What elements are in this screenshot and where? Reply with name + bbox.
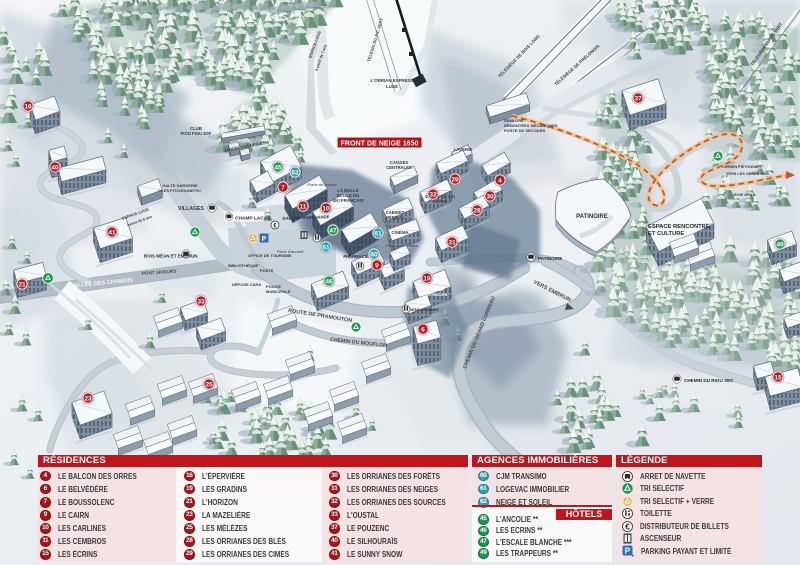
svg-text:23: 23 <box>84 395 92 402</box>
svg-text:CHEMIN PIÉTONNIER: CHEMIN PIÉTONNIER <box>722 164 761 169</box>
svg-text:Place du festival: Place du festival <box>307 182 336 187</box>
svg-text:P: P <box>624 546 630 556</box>
svg-text:FRONT DE NEIGE 1650: FRONT DE NEIGE 1650 <box>341 138 419 147</box>
svg-text:DÉPOSE CARS: DÉPOSE CARS <box>232 282 261 287</box>
svg-text:PATINOIRE: PATINOIRE <box>576 214 608 220</box>
svg-text:«LES PITCHOUNETS»: «LES PITCHOUNETS» <box>159 188 202 193</box>
svg-text:BOIS MÉAN ET EMBRUN: BOIS MÉAN ET EMBRUN <box>144 252 198 259</box>
svg-text:BIBLIOTHÈQUE: BIBLIOTHÈQUE <box>228 263 259 268</box>
svg-text:Place École Hadou: Place École Hadou <box>386 243 419 248</box>
svg-text:15: 15 <box>774 374 782 381</box>
svg-text:60: 60 <box>370 251 378 258</box>
svg-text:POSTE: POSTE <box>260 268 274 273</box>
svg-text:45: 45 <box>274 164 282 171</box>
svg-text:LAVERIE: LAVERIE <box>454 147 473 152</box>
svg-text:BOIS MÉAN: BOIS MÉAN <box>734 192 756 197</box>
svg-text:21: 21 <box>18 281 26 288</box>
svg-text:28: 28 <box>473 207 481 214</box>
svg-text:7: 7 <box>281 184 285 191</box>
svg-text:OFFICE DE TOURISME: OFFICE DE TOURISME <box>248 253 292 258</box>
svg-text:ESPACE RENCONTRE: ESPACE RENCONTRE <box>648 224 710 230</box>
svg-text:10: 10 <box>322 205 330 212</box>
svg-text:47: 47 <box>329 227 337 234</box>
svg-text:GENDARMERIE: GENDARMERIE <box>409 307 439 312</box>
svg-text:CHEMIN DU RIOU SEC: CHEMIN DU RIOU SEC <box>684 378 734 383</box>
svg-text:CENTRALES: CENTRALES <box>386 165 412 170</box>
svg-text:4: 4 <box>498 177 502 184</box>
svg-text:19: 19 <box>423 275 431 282</box>
svg-text:41: 41 <box>108 229 116 236</box>
svg-text:61: 61 <box>322 244 330 251</box>
svg-text:VERS LES ORRES 1800: VERS LES ORRES 1800 <box>726 172 769 176</box>
svg-text:.: . <box>269 239 270 244</box>
svg-text:37: 37 <box>634 95 642 102</box>
svg-text:L'ORRIAN EXPRESS: L'ORRIAN EXPRESS <box>370 78 413 83</box>
svg-text:LUGE: LUGE <box>386 84 398 89</box>
svg-text:SPECTACLES: SPECTACLES <box>421 292 448 297</box>
svg-text:40: 40 <box>51 164 59 171</box>
svg-text:MÉDICAL: MÉDICAL <box>385 215 405 220</box>
svg-text:CHAMP LACAS: CHAMP LACAS <box>235 216 271 222</box>
svg-text:30: 30 <box>486 193 494 200</box>
svg-text:SKI FRANÇAIS: SKI FRANÇAIS <box>332 198 363 203</box>
svg-text:ET CULTURE: ET CULTURE <box>648 231 684 237</box>
svg-text:29: 29 <box>451 176 459 183</box>
svg-text:CINÉMA: CINÉMA <box>391 230 409 235</box>
svg-text:€: € <box>625 521 630 531</box>
svg-text:6: 6 <box>421 326 425 333</box>
svg-text:16: 16 <box>24 103 32 110</box>
svg-text:9: 9 <box>375 262 379 269</box>
svg-text:PHARMACIE: PHARMACIE <box>343 254 369 259</box>
svg-text:VILLAGES: VILLAGES <box>178 206 204 212</box>
svg-text:46: 46 <box>325 278 333 285</box>
svg-text:31: 31 <box>448 239 456 246</box>
svg-text:32: 32 <box>429 191 437 198</box>
svg-text:POSTE DE SECOURS: POSTE DE SECOURS <box>504 128 545 133</box>
svg-text:49: 49 <box>776 241 784 248</box>
svg-text:PIOU PIOU ESF: PIOU PIOU ESF <box>181 131 212 136</box>
svg-text:33: 33 <box>197 298 205 305</box>
svg-text:P: P <box>262 236 267 243</box>
svg-text:25: 25 <box>205 381 213 388</box>
svg-text:PATINOIRE: PATINOIRE <box>538 256 562 261</box>
svg-text:62: 62 <box>291 169 299 176</box>
svg-text:11: 11 <box>300 203 307 210</box>
svg-text:MUNICIPALE: MUNICIPALE <box>266 289 291 294</box>
svg-text:61: 61 <box>374 230 382 237</box>
